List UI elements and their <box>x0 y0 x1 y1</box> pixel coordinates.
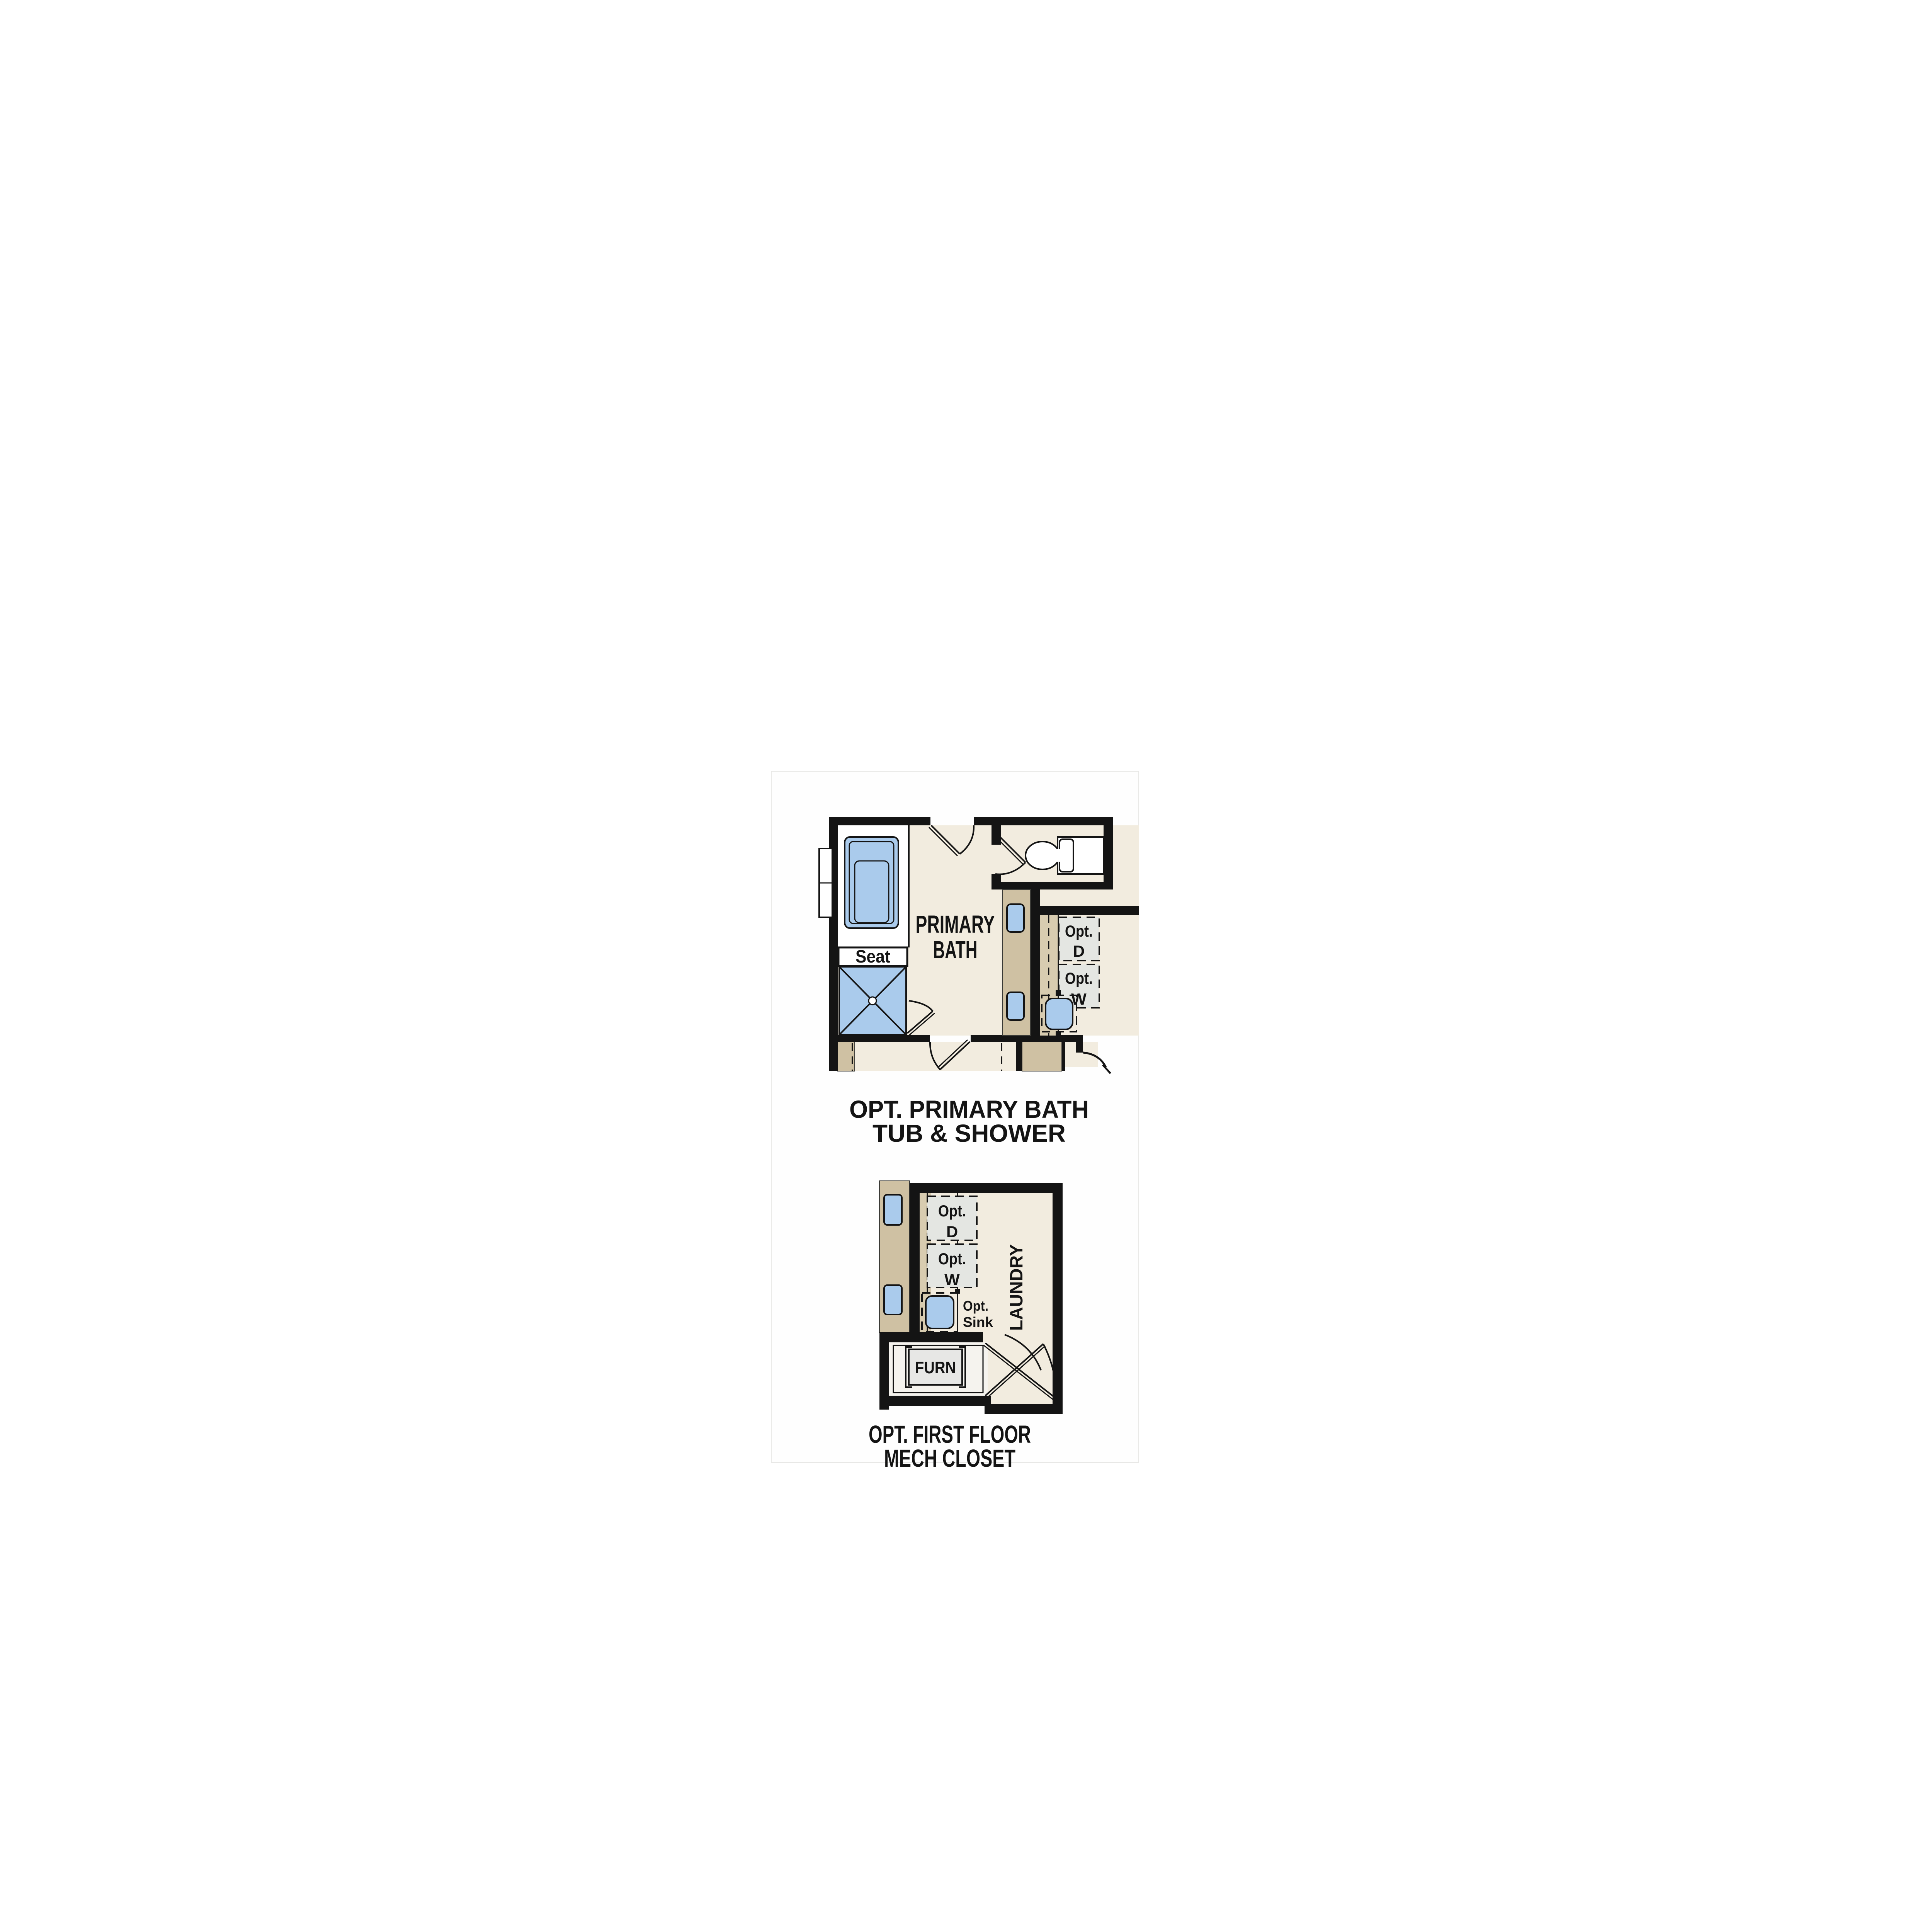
opt-sink <box>926 1296 954 1328</box>
plan1-caption-line2: TUB & SHOWER <box>872 1119 1066 1147</box>
primary-bath-floorplan: Seat <box>811 769 1144 1148</box>
room-label-laundry: LAUNDRY <box>1006 1244 1026 1331</box>
vanity-counter <box>1002 889 1031 1036</box>
svg-text:W: W <box>944 1270 960 1289</box>
bathtub <box>845 837 898 928</box>
vanity-sink-2 <box>1007 992 1024 1020</box>
bath-window <box>819 849 832 917</box>
furnace-label: FURN <box>915 1358 956 1377</box>
vanity-sink-1 <box>1007 904 1024 932</box>
svg-text:BATH: BATH <box>933 936 978 964</box>
svg-text:Sink: Sink <box>963 1314 993 1330</box>
window-2 <box>884 1285 902 1315</box>
svg-text:D: D <box>946 1223 958 1241</box>
opt-washer-label: Opt. <box>938 1250 966 1268</box>
opt-washer-label: Opt. <box>1065 969 1093 987</box>
mech-closet-floorplan: Opt. D Opt. W Opt. Sink LAUNDRY FURN <box>835 1171 1082 1476</box>
scanned-floorplan-page: Seat <box>0 0 1932 1932</box>
toilet <box>1026 837 1104 874</box>
opt-sink-label: Opt. <box>963 1298 988 1314</box>
plan2-caption-line2: MECH CLOSET <box>884 1444 1015 1472</box>
seat-label: Seat <box>855 946 890 966</box>
window-1 <box>884 1195 902 1225</box>
room-label-primary-bath: PRIMARY <box>916 910 995 938</box>
svg-text:W: W <box>1071 990 1087 1008</box>
shower <box>839 967 906 1035</box>
opt-dryer-label: Opt. <box>938 1202 966 1220</box>
shower-seat: Seat <box>838 946 907 966</box>
laundry-sink <box>1046 998 1073 1029</box>
svg-text:D: D <box>1073 942 1085 960</box>
opt-dryer-label: Opt. <box>1065 922 1093 940</box>
mech-closet: FURN <box>889 1342 988 1396</box>
